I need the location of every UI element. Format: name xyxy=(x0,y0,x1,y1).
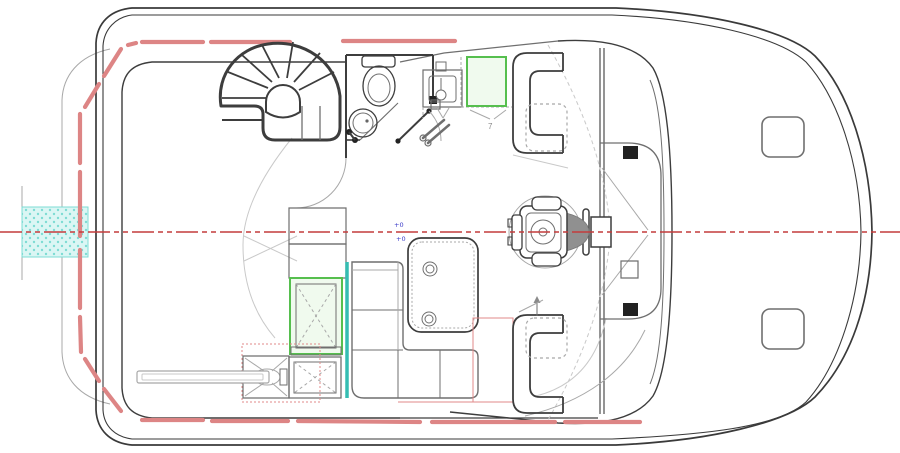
galley-counter-1 xyxy=(289,208,346,244)
galley-appliance-green xyxy=(290,278,342,355)
elevation-marker: +0 xyxy=(394,221,404,229)
companion-seat-top xyxy=(513,53,568,168)
foredeck-hatch-forward xyxy=(762,309,804,349)
passerelle-bar xyxy=(137,371,269,383)
seat-platform-outline xyxy=(473,318,513,402)
ottoman-top xyxy=(526,104,567,151)
galley xyxy=(137,158,346,402)
foredeck xyxy=(762,117,804,349)
dimension-label: 7 xyxy=(488,122,493,131)
console-speaker-top xyxy=(623,146,638,159)
ottoman-bottom xyxy=(526,318,567,358)
galley-storage-box xyxy=(289,357,341,398)
foredeck-hatch-aft xyxy=(762,117,804,157)
skylight-hatch-top: 7 xyxy=(461,57,512,131)
console-hatch xyxy=(621,261,638,278)
toilet xyxy=(362,56,395,106)
table xyxy=(408,238,478,332)
spiral-staircase xyxy=(220,42,340,140)
console-speaker-bottom xyxy=(623,303,638,316)
helm-console xyxy=(583,143,661,319)
boat-deck-plan: 7 xyxy=(0,0,900,453)
elevation-marker: +0 xyxy=(396,235,406,243)
direction-arrow xyxy=(519,296,543,316)
galley-counter-2 xyxy=(289,244,346,278)
